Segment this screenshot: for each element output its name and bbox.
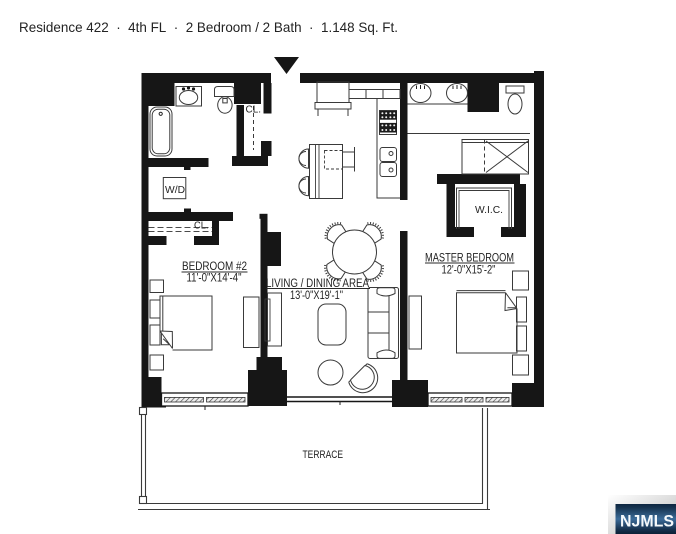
svg-text:CL.: CL. bbox=[246, 104, 262, 116]
svg-text:Residence 422 · 4th FL · 2: Residence 422 · 4th FL · 2 Bedroom / 2 B… bbox=[19, 19, 398, 35]
svg-text:NJMLS: NJMLS bbox=[620, 512, 674, 531]
svg-text:12'-0"X15'-2": 12'-0"X15'-2" bbox=[442, 265, 496, 277]
svg-text:W/D: W/D bbox=[165, 184, 185, 196]
svg-text:W.I.C.: W.I.C. bbox=[475, 204, 503, 216]
svg-text:13'-0"X19'-1": 13'-0"X19'-1" bbox=[290, 290, 343, 302]
svg-text:BEDROOM #2: BEDROOM #2 bbox=[182, 259, 247, 273]
svg-text:TERRACE: TERRACE bbox=[303, 449, 344, 461]
svg-text:CL.: CL. bbox=[194, 220, 209, 232]
svg-text:11'-0"X14'-4": 11'-0"X14'-4" bbox=[187, 273, 242, 285]
